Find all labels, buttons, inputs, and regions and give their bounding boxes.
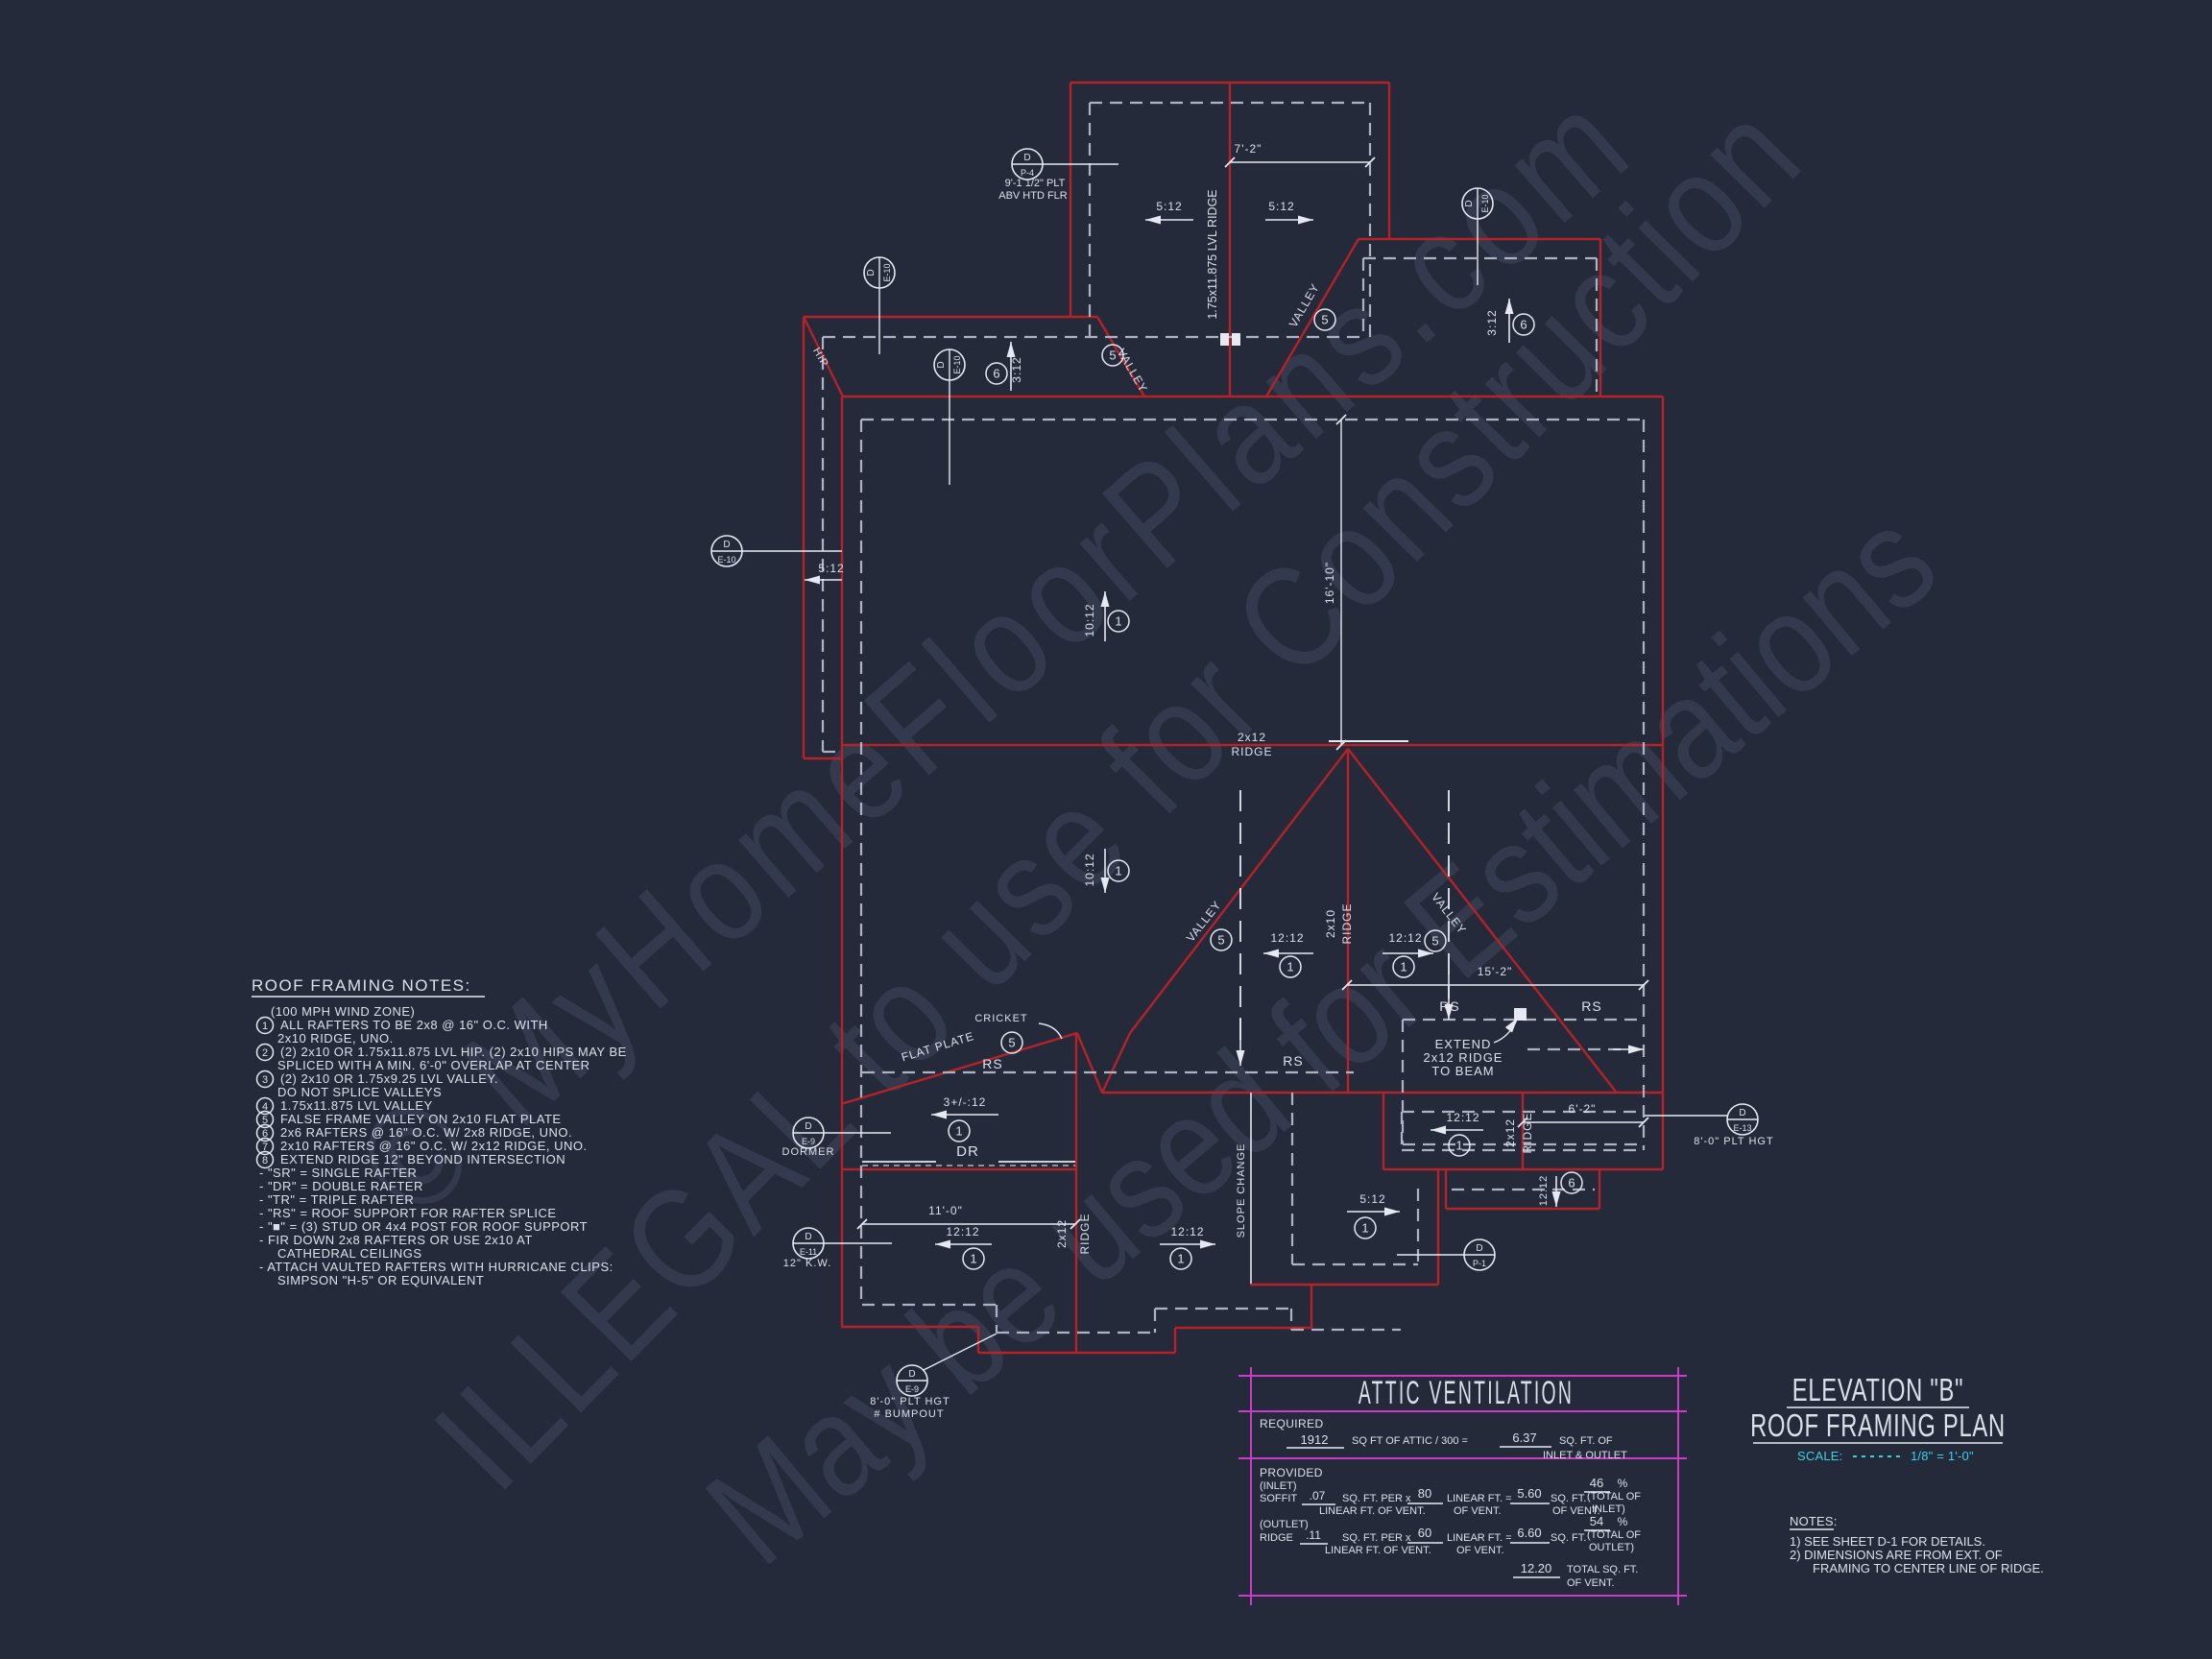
svg-text:D: D: [1739, 1108, 1745, 1118]
svg-text:- "RS" = ROOF SUPPORT FOR: - "RS" = ROOF SUPPORT FOR RAFTER SPLICE: [259, 1206, 557, 1220]
svg-text:- "TR" = TRIPLE RAFTER: - "TR" = TRIPLE RAFTER: [259, 1192, 414, 1207]
svg-text:LINEAR FT. =: LINEAR FT. =: [1447, 1493, 1512, 1504]
svg-text:D: D: [1023, 153, 1030, 163]
svg-text:CATHEDRAL CEILINGS: CATHEDRAL CEILINGS: [277, 1246, 422, 1261]
svg-text:SQ. FT. PER x: SQ. FT. PER x: [1342, 1532, 1411, 1544]
svg-text:1/8" = 1'-0": 1/8" = 1'-0": [1911, 1449, 1974, 1463]
svg-text:15'-2": 15'-2": [1478, 965, 1513, 978]
svg-text:2x12: 2x12: [1238, 731, 1266, 744]
svg-text:INLET & OUTLET: INLET & OUTLET: [1543, 1450, 1627, 1461]
svg-text:6: 6: [1568, 1176, 1575, 1190]
svg-text:OF VENT.: OF VENT.: [1456, 1545, 1504, 1556]
svg-text:1: 1: [970, 1252, 976, 1266]
svg-text:3:12: 3:12: [1485, 309, 1499, 335]
svg-text:3+/-:12: 3+/-:12: [944, 1095, 987, 1109]
svg-text:# BUMPOUT: # BUMPOUT: [874, 1408, 944, 1420]
svg-text:60: 60: [1418, 1526, 1431, 1540]
svg-text:SCALE:: SCALE:: [1797, 1449, 1842, 1463]
svg-text:RIDGE: RIDGE: [1260, 1532, 1293, 1544]
svg-text:E-10: E-10: [952, 355, 962, 373]
svg-text:6: 6: [1520, 318, 1527, 332]
svg-text:9'-1 1/2" PLT: 9'-1 1/2" PLT: [1005, 178, 1066, 189]
svg-text:- "SR" = SINGLE RAFTER: - "SR" = SINGLE RAFTER: [259, 1166, 417, 1180]
svg-text:(INLET): (INLET): [1260, 1480, 1297, 1492]
svg-text:10:12: 10:12: [1083, 853, 1096, 886]
svg-text:E-10: E-10: [882, 263, 892, 281]
svg-text:DORMER: DORMER: [782, 1146, 835, 1158]
svg-text:TO BEAM: TO BEAM: [1431, 1064, 1494, 1078]
svg-text:12:12: 12:12: [1446, 1111, 1479, 1124]
svg-text:12:12: 12:12: [1170, 1225, 1204, 1238]
svg-text:E-11: E-11: [800, 1247, 817, 1257]
svg-text:%: %: [1618, 1515, 1628, 1528]
svg-text:E-13: E-13: [1733, 1123, 1751, 1133]
svg-text:1: 1: [1455, 1139, 1462, 1153]
svg-text:- FIR DOWN 2x8 RAFTERS OR US: - FIR DOWN 2x8 RAFTERS OR USE 2x10 AT: [259, 1233, 533, 1247]
svg-text:6'-2": 6'-2": [1569, 1102, 1597, 1116]
svg-text:ABV HTD FLR: ABV HTD FLR: [998, 190, 1068, 202]
svg-text:16'-10": 16'-10": [1323, 562, 1336, 604]
svg-text:5.60: 5.60: [1517, 1486, 1541, 1501]
svg-text:SLOPE CHANGE: SLOPE CHANGE: [1236, 1143, 1247, 1238]
svg-text:SQ. FT.: SQ. FT.: [1551, 1532, 1586, 1544]
svg-text:2: 2: [262, 1047, 268, 1059]
svg-text:NOTES:: NOTES:: [1790, 1514, 1838, 1528]
svg-text:ELEVATION "B": ELEVATION "B": [1792, 1373, 1964, 1408]
svg-text:5:12: 5:12: [818, 562, 844, 575]
svg-text:RIDGE: RIDGE: [1231, 745, 1272, 758]
svg-text:%: %: [1618, 1477, 1628, 1490]
svg-text:OF VENT.: OF VENT.: [1454, 1505, 1502, 1517]
svg-text:2x12 RIDGE: 2x12 RIDGE: [1424, 1050, 1503, 1065]
svg-text:(TOTAL OF: (TOTAL OF: [1587, 1529, 1641, 1541]
svg-text:DR: DR: [956, 1143, 979, 1160]
svg-text:6: 6: [993, 367, 999, 381]
svg-text:PROVIDED: PROVIDED: [1260, 1466, 1323, 1479]
svg-text:EXTEND: EXTEND: [1435, 1037, 1492, 1051]
svg-text:3: 3: [262, 1074, 268, 1086]
svg-text:.07: .07: [1310, 1489, 1326, 1503]
svg-text:1: 1: [1115, 864, 1121, 878]
svg-text:E-10: E-10: [717, 555, 735, 565]
svg-text:2x6 RAFTERS @ 16" O.C. W/ 2x8: 2x6 RAFTERS @ 16" O.C. W/ 2x8 RIDGE, UNO…: [280, 1125, 572, 1140]
svg-text:5: 5: [1109, 349, 1116, 363]
svg-text:RIDGE: RIDGE: [1078, 1213, 1092, 1254]
svg-text:- "■" = (3) STUD OR 4x4: - "■" = (3) STUD OR 4x4 POST FOR ROOF SU…: [259, 1219, 588, 1234]
svg-text:5: 5: [1008, 1036, 1015, 1050]
svg-text:D: D: [805, 1121, 811, 1132]
svg-text:P-1: P-1: [1473, 1259, 1486, 1268]
svg-text:DO NOT SPLICE VALLEYS: DO NOT SPLICE VALLEYS: [277, 1085, 442, 1099]
svg-text:OF VENT.: OF VENT.: [1567, 1577, 1615, 1589]
svg-text:2) DIMENSIONS ARE FROM EXT. O: 2) DIMENSIONS ARE FROM EXT. OF: [1790, 1548, 2003, 1562]
svg-text:5: 5: [1321, 313, 1328, 327]
svg-text:- ATTACH VAULTED RAFTERS WIT: - ATTACH VAULTED RAFTERS WITH HURRICANE …: [259, 1260, 613, 1274]
svg-text:RS: RS: [1581, 998, 1601, 1014]
svg-text:SQ. FT. PER x: SQ. FT. PER x: [1342, 1493, 1411, 1504]
svg-text:LINEAR FT. =: LINEAR FT. =: [1447, 1532, 1512, 1544]
svg-text:(2) 2x10 OR 1.75x11.875 LVL HI: (2) 2x10 OR 1.75x11.875 LVL HIP. (2) 2x1…: [280, 1045, 627, 1059]
svg-text:(2) 2x10 OR 1.75x9.25 LVL VALL: (2) 2x10 OR 1.75x9.25 LVL VALLEY.: [280, 1071, 498, 1086]
svg-text:ROOF FRAMING PLAN: ROOF FRAMING PLAN: [1750, 1408, 2006, 1444]
svg-text:5:12: 5:12: [1359, 1192, 1385, 1206]
svg-text:11'-0": 11'-0": [928, 1204, 963, 1217]
svg-text:ROOF FRAMING NOTES:: ROOF FRAMING NOTES:: [252, 976, 471, 995]
svg-text:LINEAR FT. OF VENT.: LINEAR FT. OF VENT.: [1325, 1545, 1431, 1556]
svg-text:SIMPSON "H-5" OR EQUIVALENT: SIMPSON "H-5" OR EQUIVALENT: [277, 1273, 484, 1287]
svg-text:EXTEND RIDGE 12" BEYOND INTERS: EXTEND RIDGE 12" BEYOND INTERSECTION: [280, 1152, 565, 1166]
svg-text:1) SEE SHEET D-1 FOR DETAILS.: 1) SEE SHEET D-1 FOR DETAILS.: [1790, 1534, 1985, 1549]
svg-text:8'-0" PLT HGT: 8'-0" PLT HGT: [870, 1396, 950, 1407]
svg-text:D: D: [805, 1232, 811, 1242]
svg-text:D: D: [723, 540, 730, 550]
svg-text:10:12: 10:12: [1083, 603, 1096, 637]
svg-text:80: 80: [1418, 1486, 1431, 1501]
svg-text:3:12: 3:12: [1010, 356, 1023, 382]
svg-text:D: D: [866, 269, 877, 276]
svg-text:8'-0" PLT HGT: 8'-0" PLT HGT: [1694, 1136, 1773, 1147]
svg-text:12.20: 12.20: [1521, 1561, 1552, 1575]
svg-text:SOFFIT: SOFFIT: [1260, 1493, 1297, 1504]
svg-text:5:12: 5:12: [1268, 200, 1294, 213]
svg-text:1: 1: [1177, 1252, 1184, 1266]
svg-text:6.60: 6.60: [1517, 1526, 1541, 1540]
svg-text:1: 1: [1400, 960, 1407, 974]
svg-text:E-9: E-9: [905, 1384, 919, 1394]
svg-text:7'-2": 7'-2": [1235, 142, 1262, 156]
svg-text:46: 46: [1590, 1476, 1603, 1490]
svg-text:5: 5: [1431, 934, 1438, 949]
svg-text:OUTLET): OUTLET): [1589, 1542, 1634, 1553]
svg-text:SQ. FT. OF: SQ. FT. OF: [1559, 1435, 1613, 1447]
svg-text:E-9: E-9: [802, 1137, 815, 1146]
svg-text:RS: RS: [1283, 1053, 1303, 1069]
svg-text:SQ FT OF ATTIC / 300 =: SQ FT OF ATTIC / 300 =: [1352, 1435, 1468, 1447]
svg-text:D: D: [1476, 1243, 1482, 1254]
svg-text:54: 54: [1590, 1514, 1603, 1528]
svg-text:D: D: [908, 1369, 915, 1380]
svg-text:P-4: P-4: [1021, 168, 1034, 178]
svg-text:REQUIRED: REQUIRED: [1260, 1417, 1324, 1431]
svg-text:1: 1: [1361, 1221, 1368, 1236]
svg-text:D: D: [936, 361, 947, 368]
svg-text:2x10 RAFTERS @ 16" O.C. W/ 2x1: 2x10 RAFTERS @ 16" O.C. W/ 2x12 RIDGE, U…: [280, 1139, 588, 1153]
svg-text:RIDGE: RIDGE: [1521, 1112, 1534, 1153]
svg-text:- "DR" = DOUBLE RAFTER: - "DR" = DOUBLE RAFTER: [259, 1179, 423, 1193]
svg-text:E-10: E-10: [1480, 194, 1490, 212]
svg-text:SQ. FT.: SQ. FT.: [1551, 1493, 1586, 1504]
svg-text:12:12: 12:12: [946, 1225, 979, 1238]
svg-text:12:12: 12:12: [1388, 931, 1422, 945]
svg-text:FRAMING TO CENTER LINE OF RIDG: FRAMING TO CENTER LINE OF RIDGE.: [1813, 1561, 2044, 1575]
svg-text:12" K.W.: 12" K.W.: [783, 1258, 831, 1269]
svg-text:1: 1: [262, 1021, 268, 1032]
svg-text:RS: RS: [1439, 998, 1459, 1014]
svg-text:FALSE FRAME VALLEY ON 2x10 FLA: FALSE FRAME VALLEY ON 2x10 FLAT PLATE: [280, 1112, 562, 1126]
svg-text:ALL RAFTERS TO BE 2x8 @ 16" O.: ALL RAFTERS TO BE 2x8 @ 16" O.C. WITH: [280, 1018, 548, 1032]
svg-text:2x10: 2x10: [1324, 909, 1337, 938]
svg-text:RIDGE: RIDGE: [1340, 902, 1354, 944]
svg-text:(100 MPH WIND ZONE): (100 MPH WIND ZONE): [271, 1004, 415, 1019]
svg-text:1: 1: [1286, 960, 1293, 974]
svg-text:D: D: [1464, 200, 1475, 206]
svg-text:6.37: 6.37: [1512, 1431, 1536, 1445]
svg-text:12:12: 12:12: [1538, 1175, 1550, 1207]
svg-text:5: 5: [1217, 933, 1224, 948]
svg-text:5:12: 5:12: [1156, 200, 1182, 213]
svg-text:LINEAR FT. OF VENT.: LINEAR FT. OF VENT.: [1319, 1505, 1426, 1517]
svg-text:1912: 1912: [1301, 1432, 1329, 1447]
svg-text:12:12: 12:12: [1270, 931, 1304, 945]
svg-text:.11: .11: [1306, 1528, 1321, 1542]
svg-text:1.75x11.875 LVL RIDGE: 1.75x11.875 LVL RIDGE: [1206, 189, 1219, 319]
svg-text:1: 1: [1115, 614, 1121, 629]
svg-text:2x12: 2x12: [1503, 1118, 1517, 1147]
svg-text:1.75x11.875 LVL VALLEY: 1.75x11.875 LVL VALLEY: [280, 1098, 433, 1113]
svg-text:SPLICED WITH A MIN. 6'-0" OVER: SPLICED WITH A MIN. 6'-0" OVERLAP AT CEN…: [277, 1058, 590, 1072]
svg-text:(TOTAL OF: (TOTAL OF: [1587, 1491, 1641, 1503]
svg-text:(OUTLET): (OUTLET): [1260, 1519, 1309, 1530]
svg-text:CRICKET: CRICKET: [974, 1013, 1027, 1024]
svg-text:RS: RS: [982, 1056, 1002, 1071]
svg-text:ATTIC VENTILATION: ATTIC VENTILATION: [1358, 1374, 1574, 1410]
svg-text:2x12: 2x12: [1055, 1219, 1069, 1248]
svg-text:2x10 RIDGE, UNO.: 2x10 RIDGE, UNO.: [277, 1031, 394, 1046]
svg-text:TOTAL SQ. FT.: TOTAL SQ. FT.: [1567, 1564, 1638, 1575]
svg-text:1: 1: [955, 1124, 962, 1139]
